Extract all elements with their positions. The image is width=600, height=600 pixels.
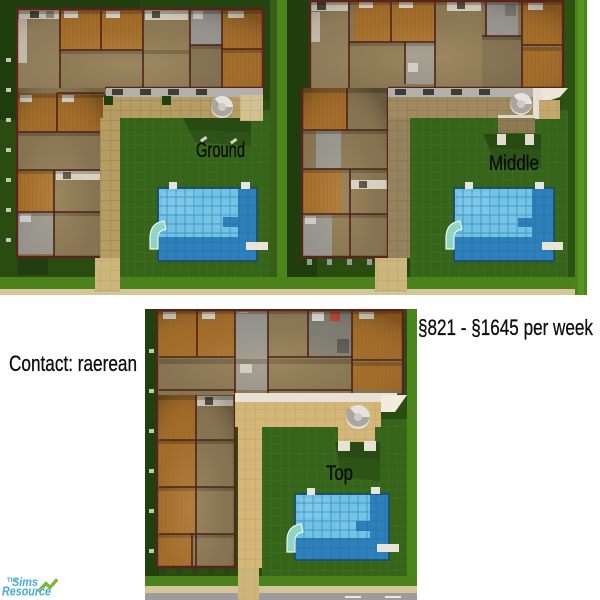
svg-text:Ground: Ground bbox=[196, 139, 245, 162]
svg-text:Contact: raerean: Contact: raerean bbox=[9, 351, 137, 376]
svg-text:Top: Top bbox=[326, 462, 353, 485]
svg-text:Middle: Middle bbox=[489, 152, 539, 175]
svg-text:Resource: Resource bbox=[2, 584, 51, 599]
svg-text:§821 - §1645 per week: §821 - §1645 per week bbox=[418, 315, 594, 340]
